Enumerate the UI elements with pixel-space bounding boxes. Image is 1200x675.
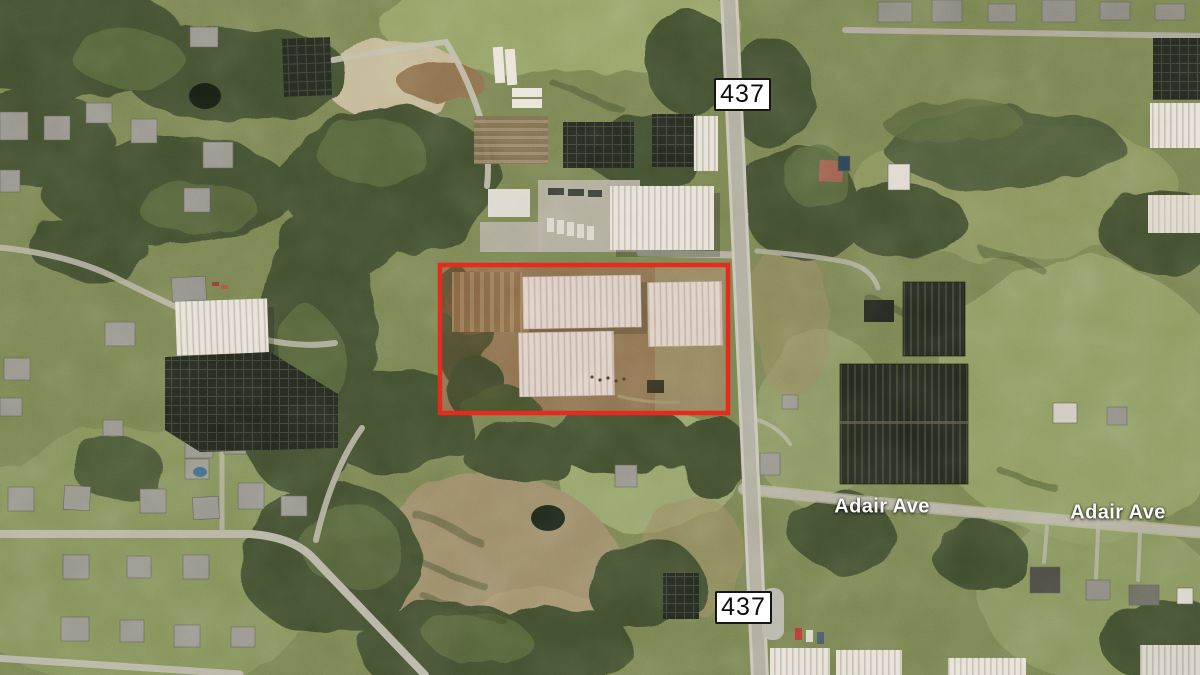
texture-grain xyxy=(0,0,1200,675)
street-label-adair-ave-east: Adair Ave xyxy=(1070,502,1166,525)
route-437-shield-north: 437 xyxy=(714,78,771,111)
aerial-map: 437 437 Adair Ave Adair Ave xyxy=(0,0,1200,675)
aerial-imagery xyxy=(0,0,1200,675)
route-437-shield-south: 437 xyxy=(715,591,772,624)
street-label-adair-ave-west: Adair Ave xyxy=(834,496,930,519)
